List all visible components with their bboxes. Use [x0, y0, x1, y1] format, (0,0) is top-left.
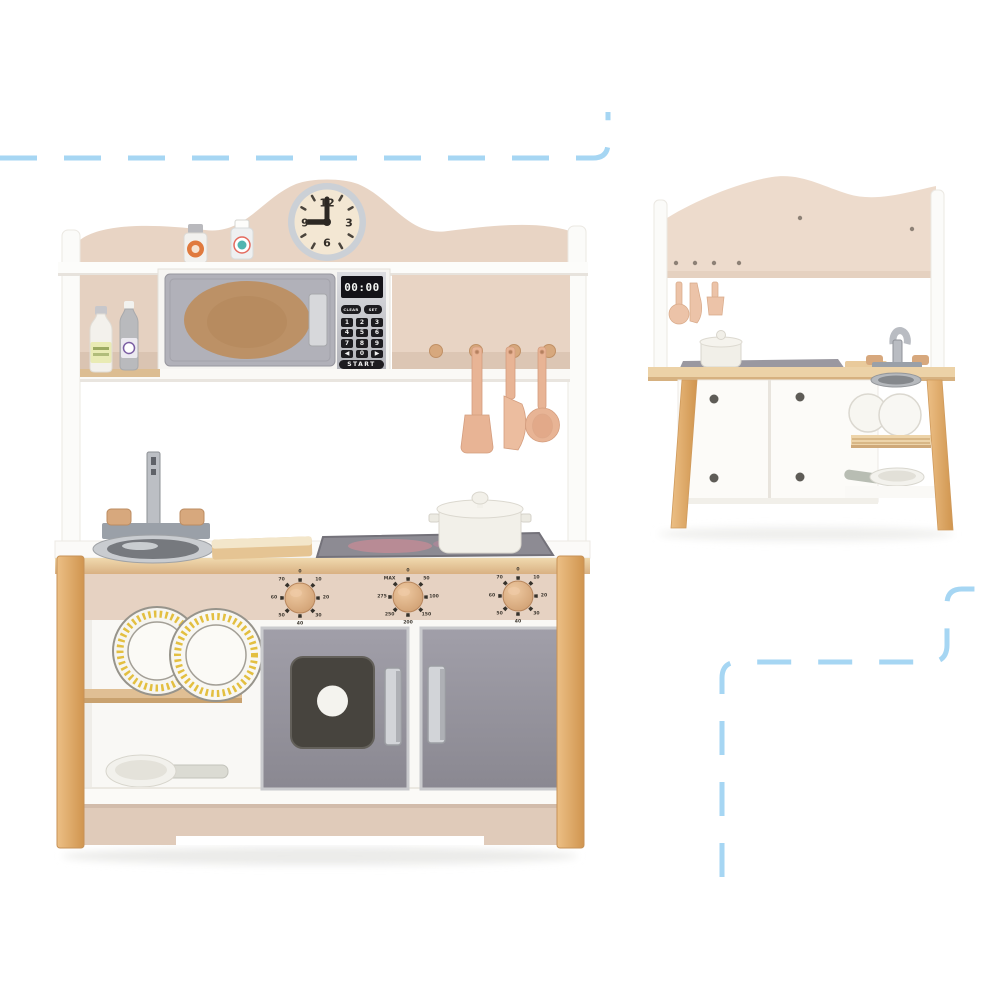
knob-dial-label: 50	[496, 612, 502, 617]
knob-dial-label: 50	[423, 576, 429, 581]
knob-dial-label: 40	[515, 620, 521, 625]
oven-window-dot	[317, 686, 348, 717]
microwave-key: 3	[371, 318, 383, 327]
toy-plates	[113, 607, 262, 701]
stove-knob-left	[282, 580, 318, 616]
microwave-key: 5	[356, 329, 368, 338]
hanging-utensils	[461, 347, 560, 453]
rear-spatula-handle	[712, 282, 718, 298]
product-photo-toy-kitchen: 12 3 6 9 00:00 CLEAR SET 123456789◀0▶ ST…	[0, 0, 1000, 1000]
knob-dial-label: 250	[385, 613, 395, 618]
knob-dial-label: 275	[377, 595, 387, 600]
rear-faucet	[866, 331, 929, 371]
clock-number-9: 9	[301, 217, 309, 230]
clock-number-6: 6	[323, 237, 331, 250]
rear-pot	[700, 331, 742, 368]
rear-spoon-handle	[676, 282, 682, 306]
rear-left-post	[654, 200, 667, 374]
rear-backsplash-panel	[664, 176, 936, 278]
front-right-post	[568, 226, 586, 562]
rear-spatula-blade	[707, 297, 724, 315]
toy-pot	[429, 492, 531, 553]
knob-dial-label: 100	[429, 595, 439, 600]
rear-back-panels	[678, 380, 878, 502]
rear-right-leg	[927, 380, 953, 530]
rear-shadow	[658, 527, 954, 541]
knob-dial-label: 60	[489, 594, 495, 599]
clock-number-3: 3	[345, 217, 353, 230]
knob-dial-label: 0	[298, 570, 301, 575]
sink-knob	[107, 509, 131, 525]
knob-dial-label: 10	[315, 577, 321, 582]
microwave-clear-button: CLEAR	[341, 305, 361, 314]
knife-handle	[506, 347, 515, 399]
knob-dial-label: 20	[541, 594, 547, 599]
microwave-handle	[309, 294, 327, 346]
spatula-blade	[461, 415, 493, 453]
knob-dial-label: 70	[496, 575, 502, 580]
cabinet-door	[421, 628, 568, 789]
front-left-post	[62, 230, 80, 562]
clock-number-12: 12	[319, 197, 334, 210]
spatula-handle	[472, 347, 482, 417]
microwave-key: 6	[371, 329, 383, 338]
knife-blade	[504, 396, 526, 450]
dashed-guide-top	[0, 112, 608, 158]
knob-dial-label: 70	[278, 577, 284, 582]
microwave-set-button: SET	[364, 305, 382, 314]
microwave-key: 7	[341, 339, 353, 348]
microwave-key: ◀	[341, 350, 353, 359]
peg	[430, 345, 443, 358]
stove-knob-right	[500, 578, 536, 614]
knob-dial-label: 30	[315, 614, 321, 619]
spoon-handle	[538, 347, 546, 409]
rear-view-kitchen	[648, 176, 955, 530]
microwave-keypad: 123456789◀0▶	[341, 318, 383, 358]
sink-faucet	[102, 452, 210, 539]
rear-plate	[879, 394, 921, 436]
microwave-key: 8	[356, 339, 368, 348]
knob-dial-label: 40	[297, 622, 303, 627]
rear-spoon-bowl	[669, 304, 689, 324]
microwave-key: ▶	[371, 350, 383, 359]
rear-hanging-utensils	[669, 282, 724, 324]
knob-dial-label: 150	[422, 613, 432, 618]
knob-dial-label: 60	[271, 596, 277, 601]
knob-dial-label: 0	[406, 569, 409, 574]
front-view-kitchen	[55, 180, 590, 849]
sink-knob	[180, 509, 204, 525]
rear-knife	[690, 283, 702, 323]
knob-dial-label: 50	[278, 614, 284, 619]
cutting-board	[212, 536, 313, 559]
knob-dial-label: 10	[533, 575, 539, 580]
front-left-leg	[57, 556, 84, 848]
microwave-key: 2	[356, 318, 368, 327]
microwave-start-button: START	[339, 360, 384, 369]
microwave-controls: 00:00 CLEAR SET 123456789◀0▶ START	[337, 272, 386, 369]
microwave-key: 0	[356, 350, 368, 359]
knob-dial-label: 30	[533, 612, 539, 617]
knob-dial-label: MAX	[384, 576, 396, 581]
oven-door	[262, 628, 408, 789]
rear-right-post	[931, 190, 944, 374]
knob-dial-label: 200	[403, 621, 413, 626]
microwave-display: 00:00	[341, 276, 383, 298]
knob-dial-label: 0	[516, 568, 519, 573]
knob-dial-label: 20	[323, 596, 329, 601]
front-shadow	[62, 847, 578, 865]
microwave-key: 1	[341, 318, 353, 327]
dashed-guide-bottom-right	[722, 589, 1000, 877]
microwave-key: 4	[341, 329, 353, 338]
kitchen-artwork	[0, 0, 1000, 1000]
stove-knob-middle	[390, 579, 426, 615]
microwave-key: 9	[371, 339, 383, 348]
front-right-leg	[557, 556, 584, 848]
